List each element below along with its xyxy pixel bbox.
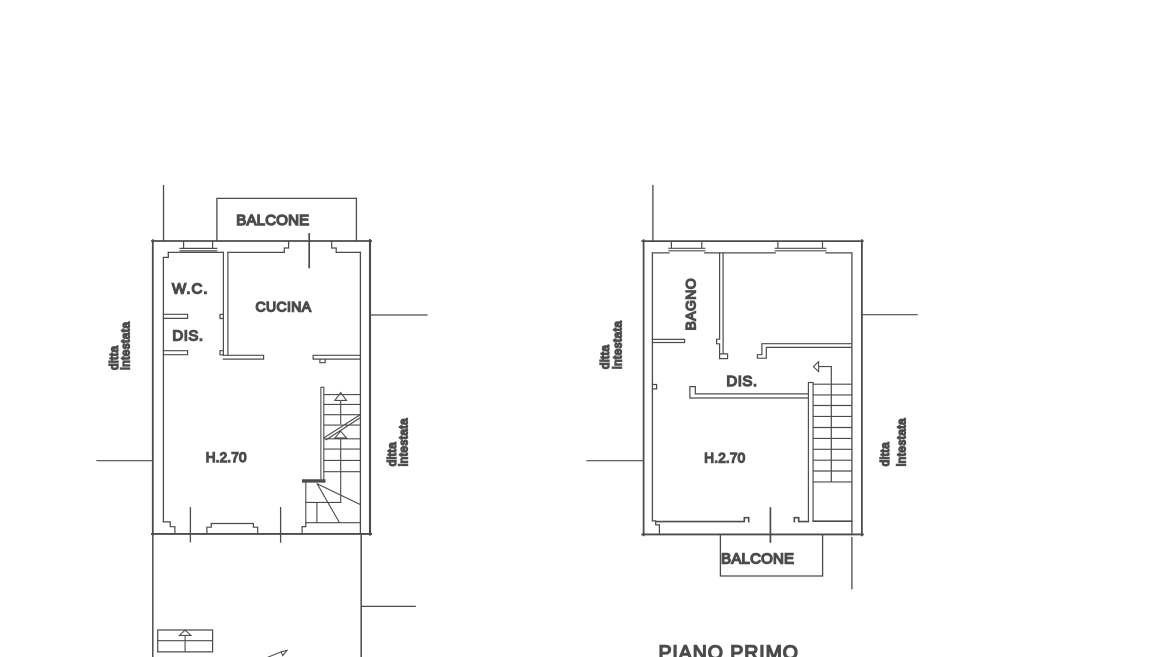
svg-text:H.2.70: H.2.70 [206, 450, 247, 465]
svg-text:W.C.: W.C. [172, 281, 209, 298]
svg-text:CUCINA: CUCINA [255, 299, 311, 315]
svg-text:BALCONE: BALCONE [721, 550, 794, 567]
svg-text:H.2.70: H.2.70 [704, 450, 745, 465]
svg-text:BAGNO: BAGNO [683, 278, 699, 331]
svg-text:DIS.: DIS. [726, 373, 757, 390]
svg-text:PIANO PRIMO: PIANO PRIMO [658, 642, 798, 657]
svg-text:BALCONE: BALCONE [236, 212, 309, 229]
svg-text:DIS.: DIS. [172, 327, 203, 344]
